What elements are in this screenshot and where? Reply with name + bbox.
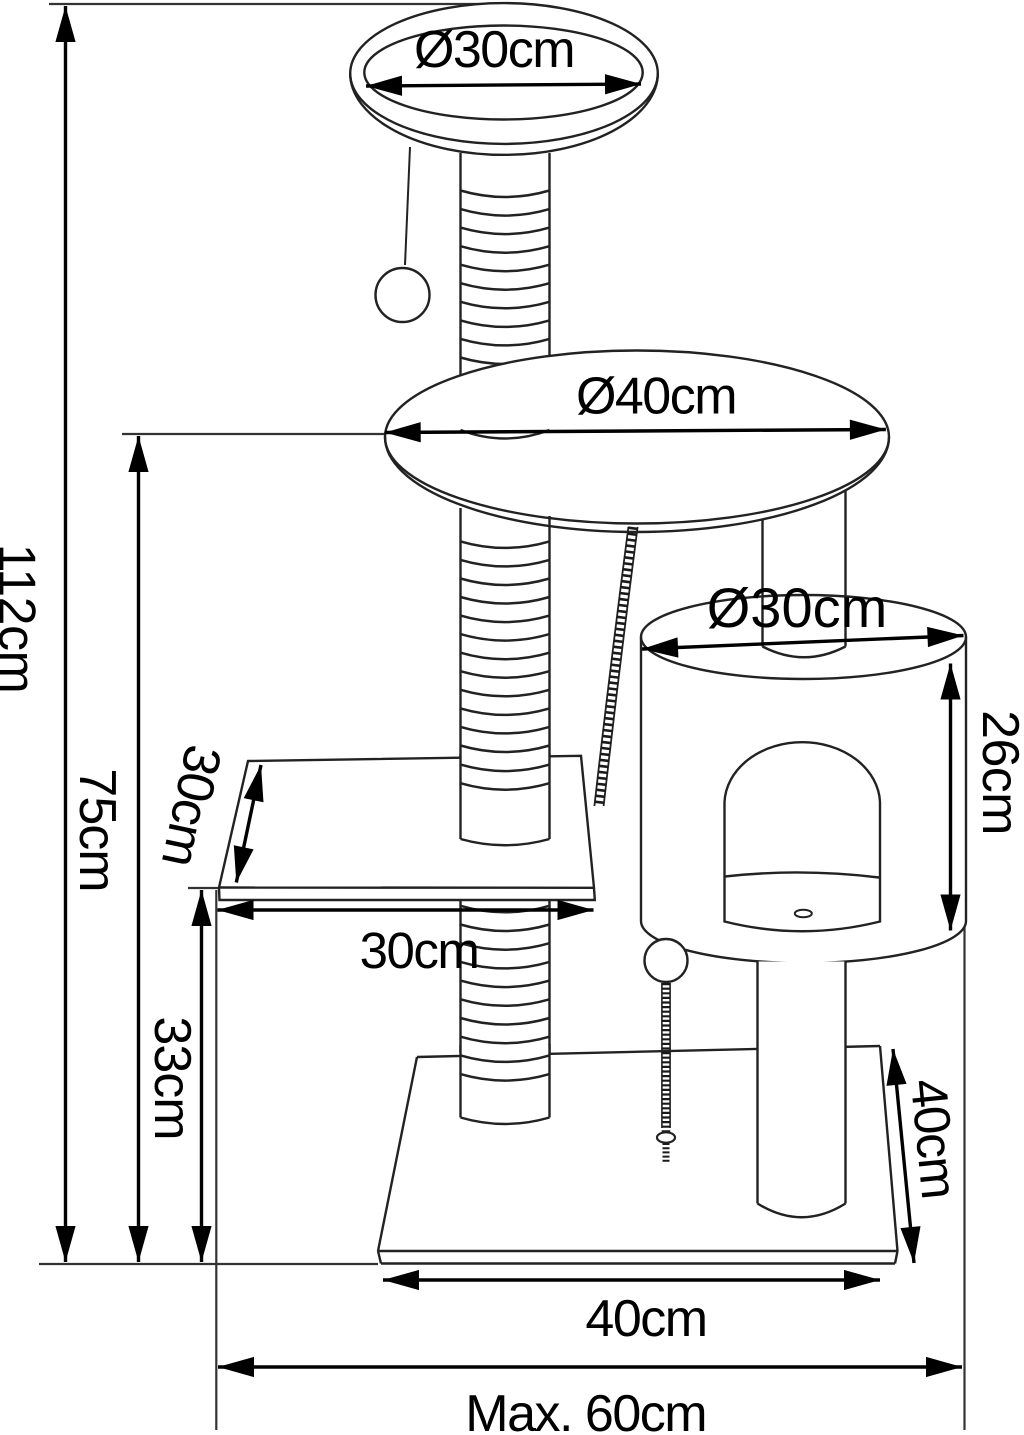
- svg-text:Ø30cm: Ø30cm: [414, 21, 574, 79]
- svg-text:Ø30cm: Ø30cm: [707, 576, 888, 639]
- svg-text:Max. 60cm: Max. 60cm: [465, 1385, 706, 1435]
- svg-text:33cm: 33cm: [143, 1016, 201, 1139]
- svg-text:112cm: 112cm: [0, 544, 46, 694]
- svg-text:30cm: 30cm: [360, 922, 479, 979]
- svg-text:26cm: 26cm: [971, 710, 1024, 835]
- svg-text:40cm: 40cm: [585, 1290, 706, 1348]
- svg-text:75cm: 75cm: [68, 768, 126, 891]
- svg-text:40cm: 40cm: [900, 1076, 968, 1200]
- svg-text:Ø40cm: Ø40cm: [576, 368, 736, 426]
